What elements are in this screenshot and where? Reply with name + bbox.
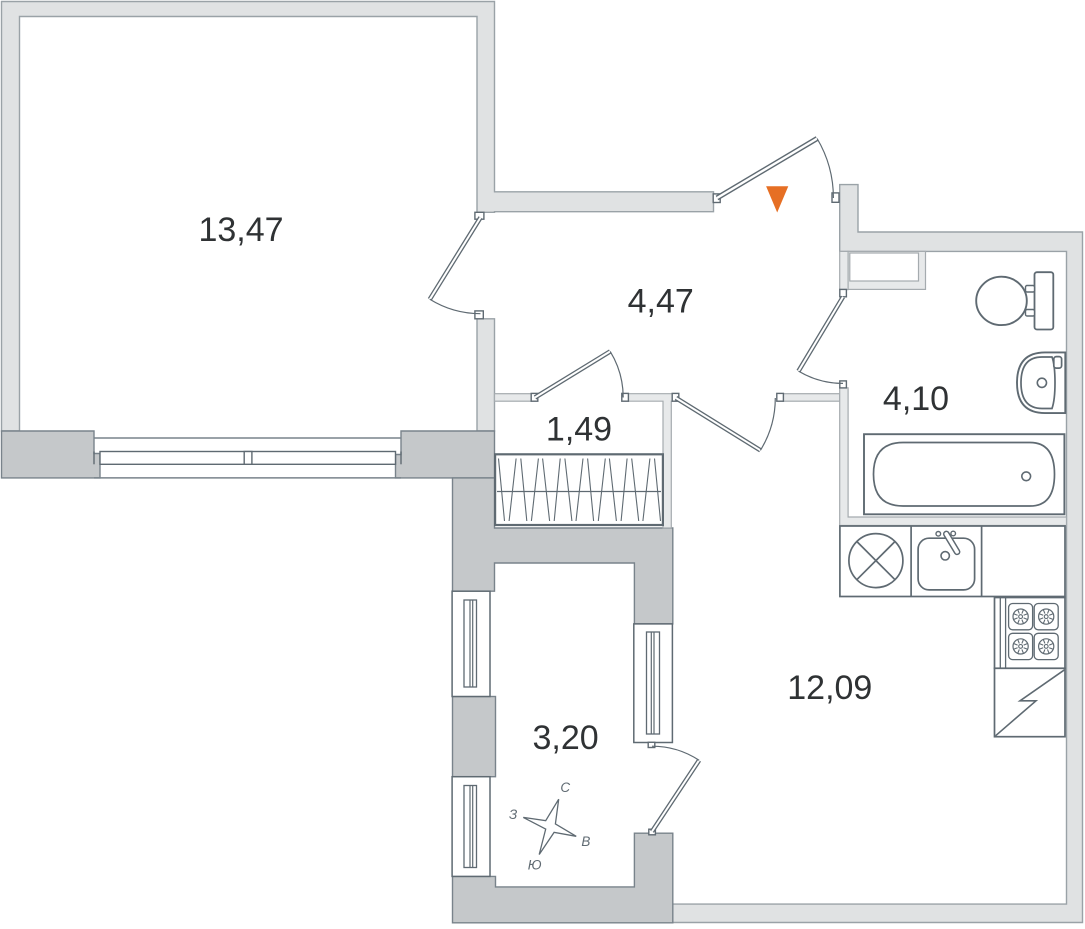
svg-text:З: З <box>509 807 518 822</box>
svg-text:12,09: 12,09 <box>787 669 872 707</box>
svg-text:1,49: 1,49 <box>546 411 612 449</box>
svg-text:Ю: Ю <box>528 858 542 873</box>
svg-text:С: С <box>560 780 570 795</box>
svg-text:4,10: 4,10 <box>883 380 949 418</box>
svg-text:13,47: 13,47 <box>198 211 283 249</box>
svg-text:4,47: 4,47 <box>628 283 694 321</box>
svg-text:3,20: 3,20 <box>533 719 599 757</box>
svg-text:В: В <box>581 834 590 849</box>
